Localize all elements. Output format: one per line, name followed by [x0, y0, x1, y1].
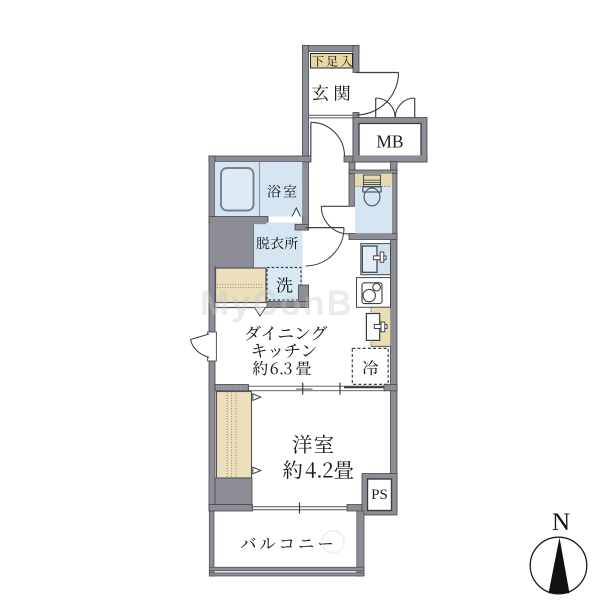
svg-text:MB: MB	[376, 132, 403, 152]
svg-text:N: N	[552, 509, 570, 536]
svg-text:PS: PS	[371, 487, 388, 503]
svg-text:MyConB: MyConB	[200, 284, 354, 323]
